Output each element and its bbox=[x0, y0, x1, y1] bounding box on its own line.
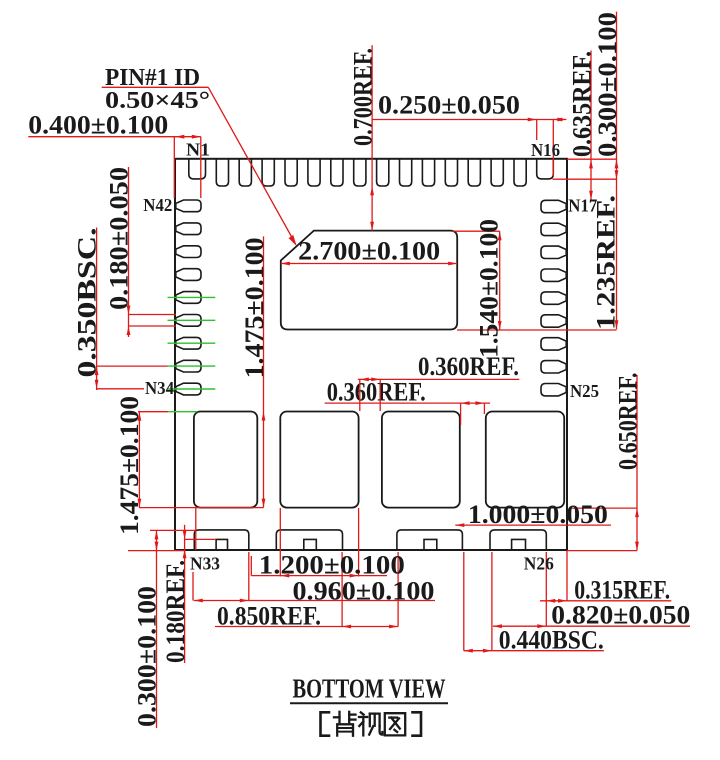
svg-text:0.300±0.100: 0.300±0.100 bbox=[133, 586, 162, 727]
svg-text:N33: N33 bbox=[190, 554, 220, 574]
svg-text:1.200±0.100: 1.200±0.100 bbox=[259, 550, 405, 579]
svg-text:N1: N1 bbox=[186, 140, 210, 160]
svg-text:N25: N25 bbox=[570, 381, 599, 401]
svg-text:N26: N26 bbox=[524, 554, 554, 574]
svg-text:1.235REF.: 1.235REF. bbox=[592, 195, 621, 330]
svg-text:0.400±0.100: 0.400±0.100 bbox=[28, 110, 168, 139]
svg-text:0.700REF.: 0.700REF. bbox=[349, 48, 378, 146]
svg-text:0.250±0.050: 0.250±0.050 bbox=[378, 91, 520, 120]
svg-text:N16: N16 bbox=[531, 140, 560, 160]
svg-text:2.700±0.100: 2.700±0.100 bbox=[298, 236, 440, 265]
svg-text:0.850REF.: 0.850REF. bbox=[217, 601, 321, 630]
svg-text:1.000±0.050: 1.000±0.050 bbox=[468, 500, 608, 529]
svg-text:0.440BSC.: 0.440BSC. bbox=[499, 626, 604, 655]
svg-text:BOTTOM VIEW: BOTTOM VIEW bbox=[293, 674, 446, 704]
svg-text:0.360REF.: 0.360REF. bbox=[418, 352, 519, 381]
svg-text:0.300±0.100: 0.300±0.100 bbox=[593, 12, 622, 157]
svg-text:0.650REF.: 0.650REF. bbox=[614, 373, 643, 471]
svg-text:N42: N42 bbox=[143, 195, 172, 215]
svg-text:0.350BSC.: 0.350BSC. bbox=[72, 228, 101, 378]
svg-text:N34: N34 bbox=[145, 378, 174, 398]
svg-text:0.180REF.: 0.180REF. bbox=[161, 560, 190, 663]
svg-text:0.180±0.050: 0.180±0.050 bbox=[105, 167, 134, 310]
svg-text:1.475±0.100: 1.475±0.100 bbox=[115, 396, 144, 535]
svg-text:0.360REF.: 0.360REF. bbox=[327, 378, 426, 407]
svg-text:1.540±0.100: 1.540±0.100 bbox=[474, 219, 503, 358]
svg-text:1.475±0.100: 1.475±0.100 bbox=[240, 237, 269, 378]
